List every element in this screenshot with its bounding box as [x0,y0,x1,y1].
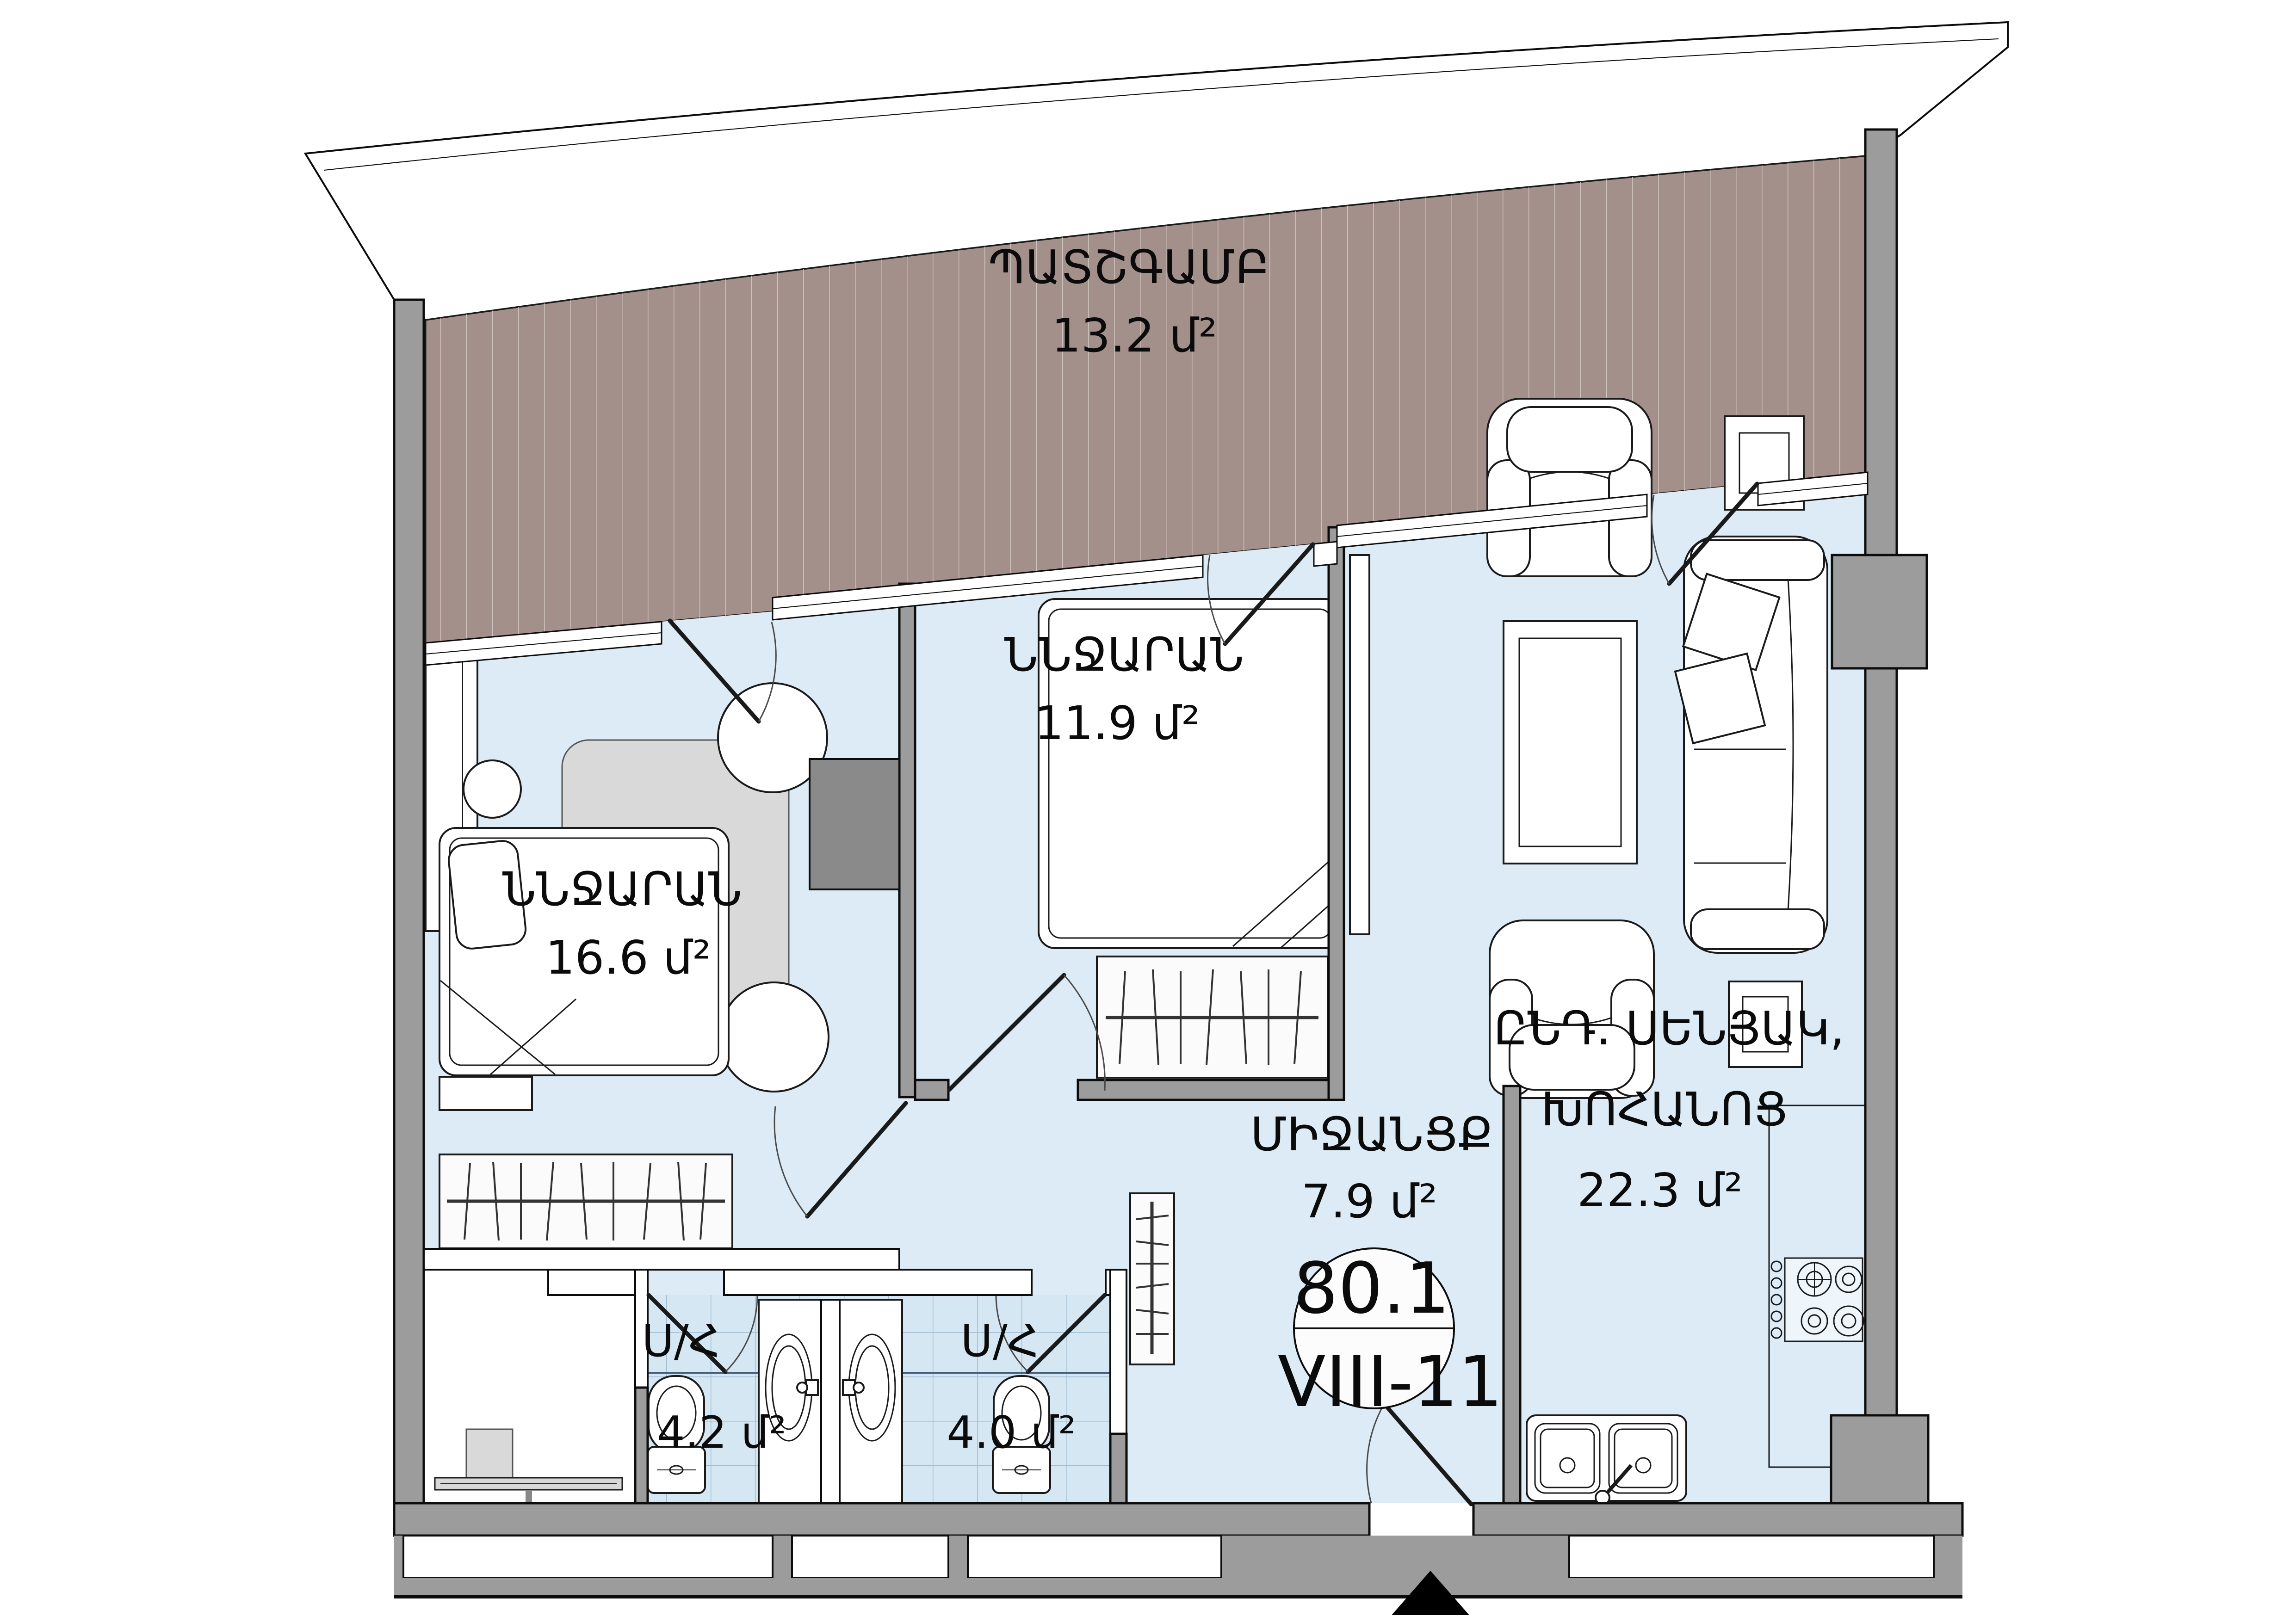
hallway-rack [1130,1193,1174,1364]
chair-2 [719,982,829,1092]
right-exterior-wall [1865,130,1897,1503]
bath-partition [821,1300,840,1503]
bottom-wall-cells [394,1536,1962,1598]
bedroom-middle-south-wall [1078,1080,1344,1100]
wardrobe-rack [439,1154,732,1248]
stool [464,760,521,818]
bathroom-1-area: 4.2 մ² [657,1407,786,1458]
closet-rack [1097,957,1328,1078]
armchair-top [1487,399,1652,576]
nightstand [439,1077,532,1110]
right-wall-column-1 [1832,555,1927,668]
stove [1771,1258,1863,1341]
left-exterior-wall [394,300,424,1508]
bath2-east-wall-lower [1110,1434,1126,1503]
bathroom-1-name: Ս/Հ [642,1316,720,1367]
balcony-area: 13.2 մ² [1052,309,1217,363]
coffee-table [1504,621,1637,864]
bedroom-middle-area: 11.9 մ² [1034,696,1200,750]
living-area: 22.3 մ² [1577,1163,1743,1217]
kitchen-sink [1527,1415,1686,1505]
bath-top-wall-a [548,1270,648,1295]
hallway-area: 7.9 մ² [1301,1174,1437,1228]
partition-bedrooms-stub [915,1080,948,1100]
balcony-name: ՊԱՏՇԳԱՄԲ [988,240,1269,294]
bath-top-wall-b [724,1270,1032,1295]
bedroom-middle-east-wall [1329,527,1344,1100]
bath1-west-wall-lower [635,1388,648,1503]
living-name-line2: ԽՈՀԱՆՈՑ [1541,1082,1788,1136]
living-name-line1: ԸՆԴ. ՍԵՆՅԱԿ, [1494,1001,1845,1055]
stamp-unit-number: VIII-11 [1278,1341,1503,1423]
sofa [1675,537,1827,953]
right-wall-column-2 [1831,1415,1928,1503]
bottom-wall-left [394,1503,1369,1536]
hall-kitchen-divider [1504,1086,1520,1503]
tv-panel [1350,555,1369,934]
bedroom-left-area: 16.6 մ² [545,931,711,985]
floor-plan-page: ՊԱՏՇԳԱՄԲ 13.2 մ² [0,0,2296,1623]
stamp-floor-area: 80.1 [1293,1247,1450,1329]
bathroom-2-name: Ս/Հ [960,1316,1039,1367]
laundry-niche-floor [424,1270,635,1503]
hallway-name: ՄԻՋԱՆՑՔ [1250,1107,1493,1161]
bedroom-left-south-wall [424,1249,899,1270]
wardrobe-shaft [810,759,899,889]
bathroom-2-area: 4.0 մ² [947,1407,1076,1458]
partition-bedrooms [899,584,915,1097]
window-bedroom-middle [1314,542,1337,566]
bedroom-left-name: ՆՆՋԱՐԱՆ [502,862,742,916]
bedroom-middle-name: ՆՆՋԱՐԱՆ [1004,628,1244,682]
floor-plan-drawing: ՊԱՏՇԳԱՄԲ 13.2 մ² [0,0,2296,1623]
bottom-wall-right [1473,1503,1962,1536]
